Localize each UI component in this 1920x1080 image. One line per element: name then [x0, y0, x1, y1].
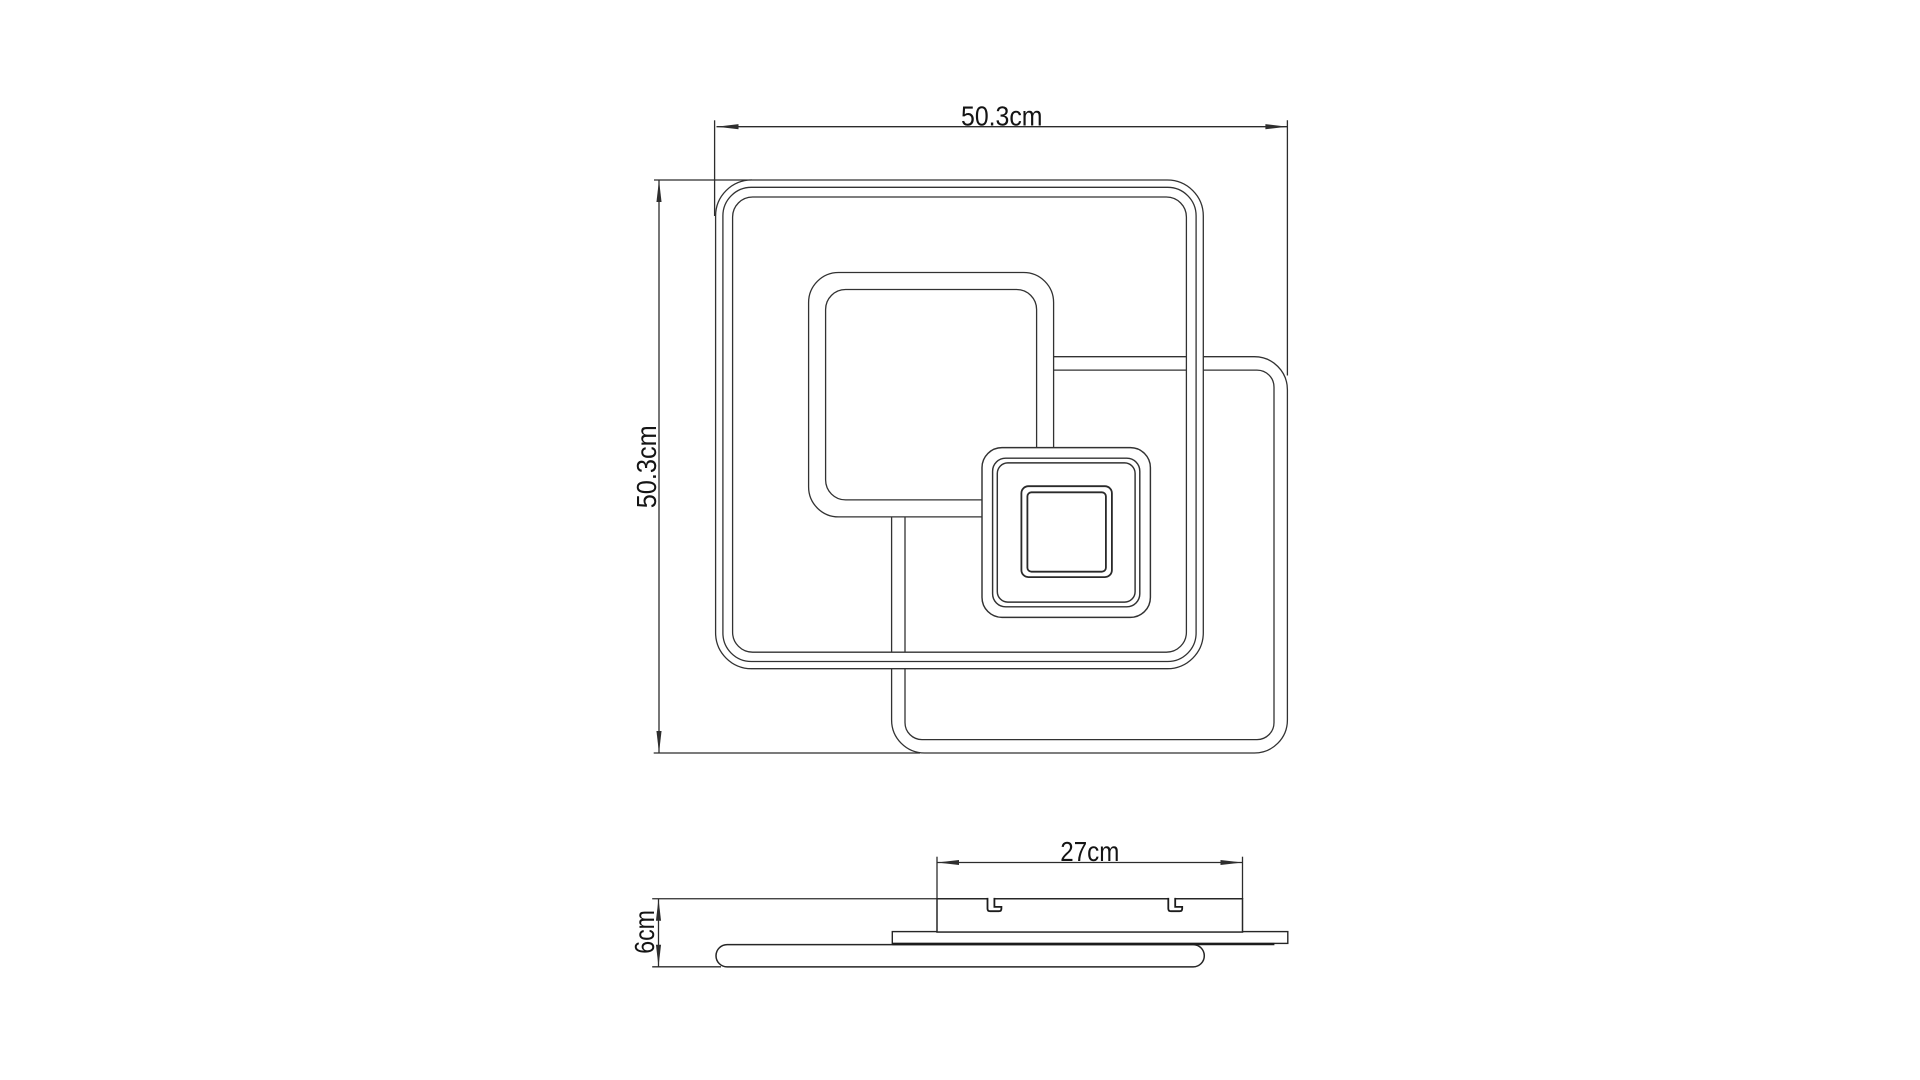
- svg-text:27cm: 27cm: [1060, 836, 1119, 867]
- svg-text:50.3cm: 50.3cm: [961, 100, 1043, 131]
- svg-text:6cm: 6cm: [629, 910, 660, 954]
- svg-text:50.3cm: 50.3cm: [631, 425, 662, 508]
